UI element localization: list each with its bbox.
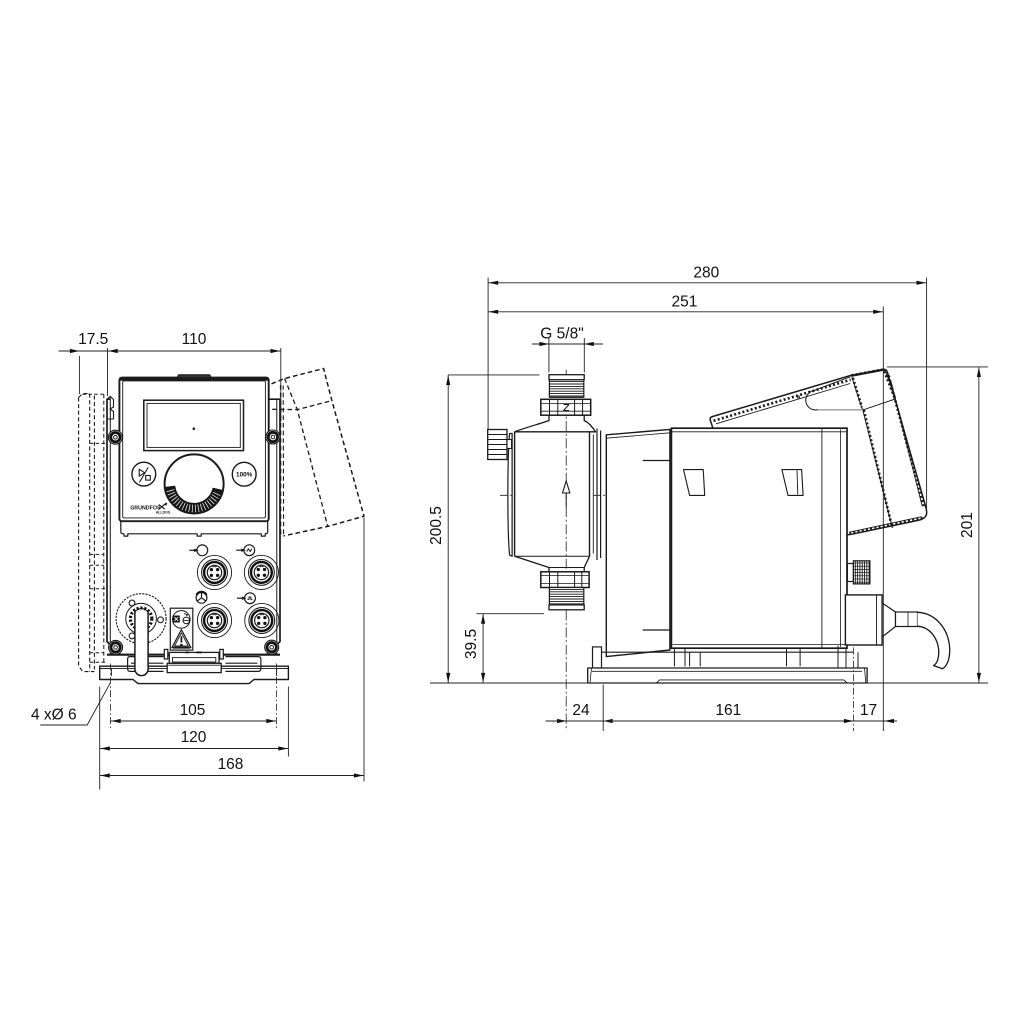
svg-text:251: 251 xyxy=(671,294,697,311)
svg-text:168: 168 xyxy=(218,756,244,773)
svg-text:100%: 100% xyxy=(236,472,253,479)
svg-text:200.5: 200.5 xyxy=(428,506,445,545)
svg-text:17: 17 xyxy=(860,702,877,719)
svg-text:201: 201 xyxy=(959,512,976,538)
svg-text:280: 280 xyxy=(693,265,719,282)
svg-text:17.5: 17.5 xyxy=(78,331,108,348)
svg-text:39.5: 39.5 xyxy=(463,629,480,659)
svg-text:105: 105 xyxy=(180,702,206,719)
svg-text:24: 24 xyxy=(572,702,590,719)
svg-text:ALLDOS: ALLDOS xyxy=(156,511,171,515)
svg-text:161: 161 xyxy=(715,702,741,719)
svg-text:120: 120 xyxy=(181,729,207,746)
svg-text:4 xØ 6: 4 xØ 6 xyxy=(31,707,77,724)
svg-text:G 5/8": G 5/8" xyxy=(540,326,583,343)
svg-text:110: 110 xyxy=(182,331,207,348)
